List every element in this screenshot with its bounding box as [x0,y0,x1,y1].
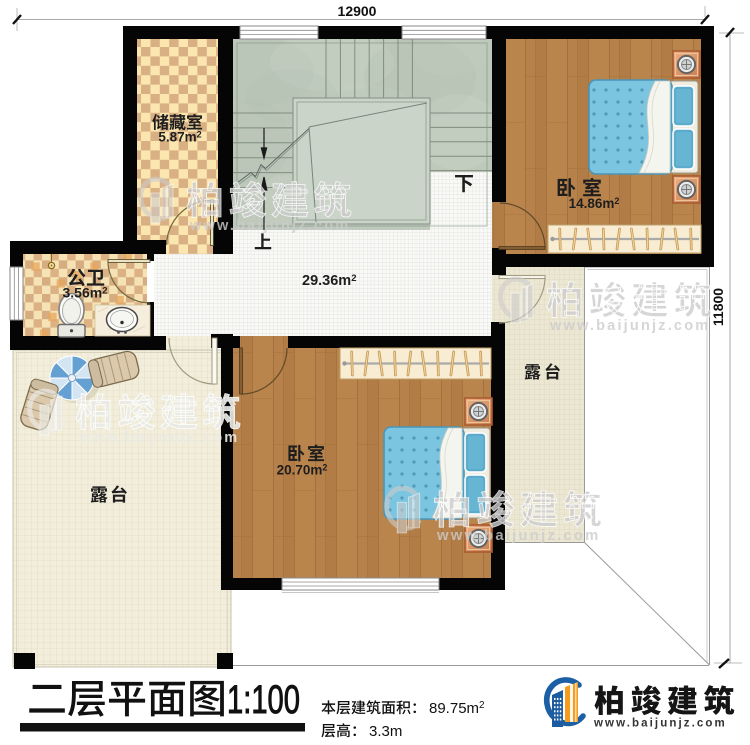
svg-text:www.baijunjz.com: www.baijunjz.com [78,430,239,446]
svg-text:20.70m2: 20.70m2 [277,463,328,478]
svg-text:3.56m2: 3.56m2 [63,285,108,301]
svg-text:3.3m: 3.3m [369,723,402,740]
svg-text:14.86m2: 14.86m2 [569,196,620,211]
svg-text:89.75m2: 89.75m2 [429,700,485,717]
svg-text:29.36m2: 29.36m2 [302,273,356,289]
svg-text:www.baijunjz.com: www.baijunjz.com [436,528,600,544]
svg-text:www.baijunjz.com: www.baijunjz.com [189,218,350,234]
svg-text:5.87m2: 5.87m2 [158,130,201,145]
svg-text:1:100: 1:100 [227,678,300,722]
svg-text:www.baijunjz.com: www.baijunjz.com [593,718,727,730]
svg-text:www.baijunjz.com: www.baijunjz.com [549,318,710,334]
svg-text:12900: 12900 [338,3,377,19]
svg-text:11800: 11800 [710,288,726,326]
